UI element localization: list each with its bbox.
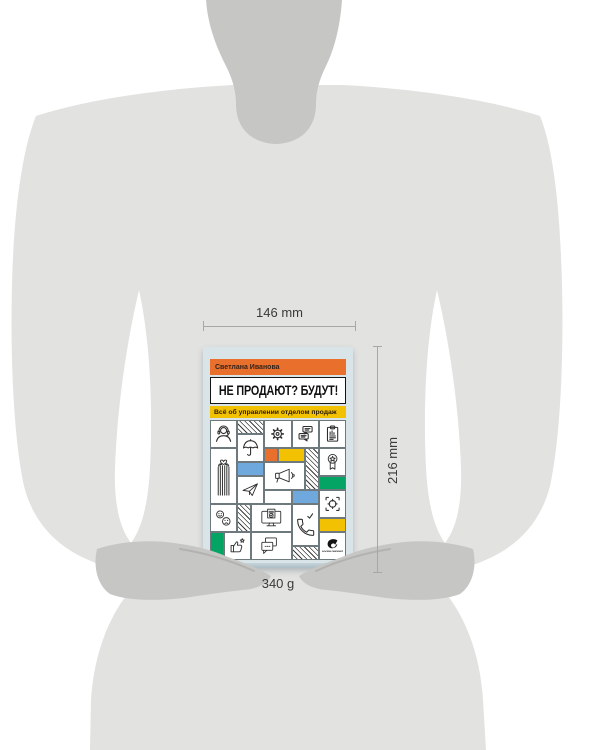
megaphone-icon — [264, 462, 305, 490]
title-band: НЕ ПРОДАЮТ? БУДУТ! — [210, 377, 346, 404]
target-crosshair-icon — [319, 490, 346, 518]
clipboard-chart-icon — [319, 420, 346, 448]
paper-plane-icon — [237, 476, 264, 504]
height-dimension-line — [377, 346, 378, 573]
book-cover: Светлана Иванова НЕ ПРОДАЮТ? БУДУТ! Всё … — [203, 347, 353, 568]
width-dimension-label: 146 mm — [203, 305, 356, 320]
weight-label: 340 g — [238, 576, 318, 591]
hatch-pattern-block — [292, 546, 319, 560]
empty-cell — [264, 490, 291, 504]
yellow-block — [319, 518, 346, 532]
publisher-logo: АЛЬПИНА ПАБЛИШЕР — [319, 532, 346, 560]
armpit-gap-right — [425, 290, 461, 543]
person-head-neck — [206, 0, 342, 144]
author-name: Светлана Иванова — [215, 364, 280, 371]
width-dimension-line — [203, 326, 356, 327]
publisher-name: АЛЬПИНА ПАБЛИШЕР — [322, 550, 343, 553]
blue-block — [292, 490, 319, 504]
thumbs-up-star-icon — [224, 532, 251, 560]
hatch-pattern-block — [305, 448, 319, 490]
subtitle-band: Всё об управлении отделом продаж — [210, 406, 346, 418]
hatch-pattern-block — [237, 504, 251, 532]
speech-bubbles-icon — [251, 532, 292, 560]
armpit-gap-left — [115, 290, 151, 543]
hatch-pattern-block — [237, 420, 264, 434]
blue-block — [237, 462, 264, 476]
green-block — [319, 476, 346, 490]
gear-icon — [264, 420, 291, 448]
phone-call-check-icon — [292, 504, 319, 546]
product-photo: Светлана Иванова НЕ ПРОДАЮТ? БУДУТ! Всё … — [0, 0, 600, 750]
orange-block — [264, 448, 278, 462]
book-subtitle: Всё об управлении отделом продаж — [214, 409, 337, 416]
book-title: НЕ ПРОДАЮТ? БУДУТ! — [218, 383, 337, 398]
emoji-faces-icon — [210, 504, 237, 532]
author-band: Светлана Иванова — [210, 359, 346, 375]
chat-bubbles-icon — [292, 420, 319, 448]
cover-icon-mosaic: АЛЬПИНА ПАБЛИШЕР — [210, 420, 346, 560]
headset-support-icon — [210, 420, 237, 448]
yellow-block — [278, 448, 305, 462]
monitor-document-icon — [251, 504, 292, 532]
height-dimension-label: 216 mm — [385, 437, 400, 484]
umbrella-icon — [237, 434, 264, 462]
hands-holding-heart-icon — [210, 448, 237, 504]
green-block — [210, 532, 224, 560]
award-ribbon-icon — [319, 448, 346, 476]
